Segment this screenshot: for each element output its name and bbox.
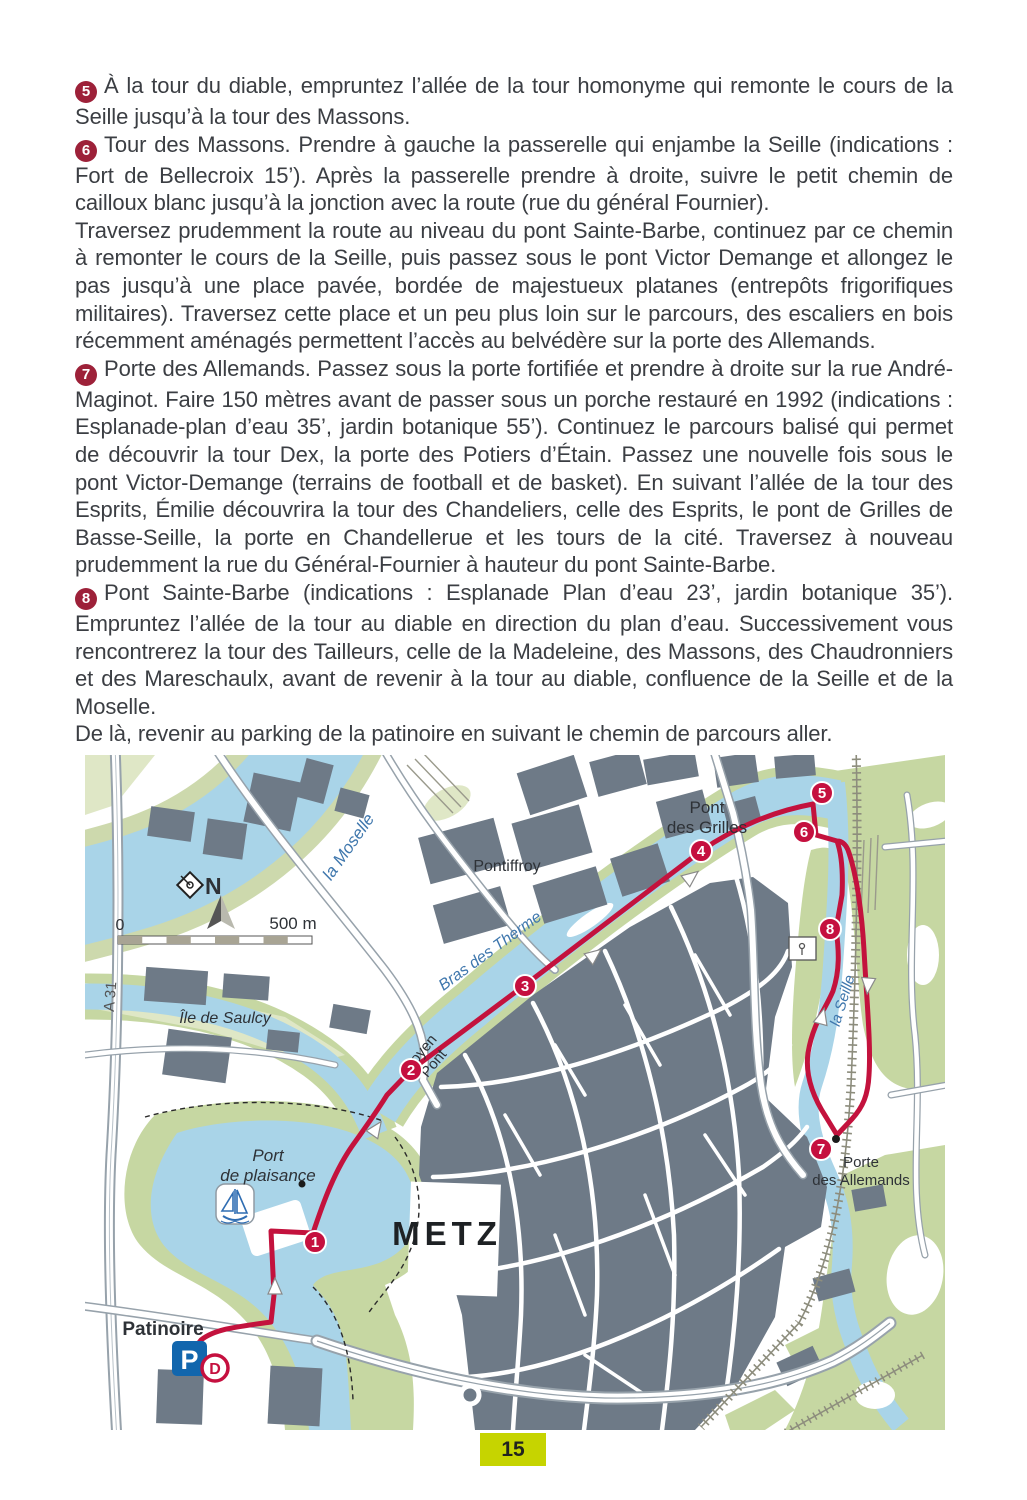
paragraph-text: À la tour du diable, empruntez l’allée d… [75, 73, 953, 129]
svg-text:4: 4 [697, 843, 706, 860]
svg-text:8: 8 [826, 921, 834, 938]
paragraph-step6: 6Tour des Massons. Prendre à gauche la p… [75, 131, 953, 217]
label-pontiffroy: Pontiffroy [473, 858, 540, 875]
svg-text:2: 2 [407, 1062, 415, 1079]
depart-letter: D [209, 1361, 221, 1378]
depart-icon: D [202, 1355, 228, 1381]
route-marker-3: 3 [514, 975, 536, 997]
paragraph-return: De là, revenir au parking de la patinoir… [75, 720, 953, 748]
porte-allemands-dot [832, 1135, 840, 1143]
step-badge-5: 5 [75, 81, 97, 103]
route-marker-1: 1 [304, 1231, 326, 1253]
route-marker-7: 7 [810, 1138, 832, 1160]
route-marker-8: 8 [819, 918, 841, 940]
route-marker-6: 6 [793, 821, 815, 843]
scale-zero: 0 [116, 917, 125, 934]
label-metz: METZ [392, 1215, 502, 1252]
map-canvas: P D la Moselle Bras des Therme la Seille… [85, 755, 945, 1430]
paragraph-text: Porte des Allemands. Passez sous la port… [75, 356, 953, 578]
svg-text:5: 5 [818, 785, 826, 802]
page-number-badge: 15 [480, 1433, 546, 1466]
label-porte-des-allemands: Porte [843, 1154, 879, 1171]
step-badge-7: 7 [75, 364, 97, 386]
garden-icon [789, 937, 816, 960]
label-pont-des-grilles: Pont [690, 798, 725, 817]
paragraph-text: De là, revenir au parking de la patinoir… [75, 721, 832, 746]
label-ile-de-saulcy: Île de Saulcy [179, 1008, 272, 1027]
page-number: 15 [501, 1438, 524, 1462]
svg-text:7: 7 [817, 1141, 825, 1158]
svg-text:1: 1 [311, 1234, 319, 1251]
roundabout [461, 1386, 479, 1404]
paragraph-text: Tour des Massons. Prendre à gauche la pa… [75, 132, 953, 216]
compass-north-letter: N [205, 873, 222, 899]
scale-distance: 500 m [269, 914, 316, 933]
scale-bar [118, 936, 312, 944]
step-badge-8: 8 [75, 588, 97, 610]
svg-text:des Grilles: des Grilles [667, 818, 747, 837]
paragraph-step5: 5À la tour du diable, empruntez l’allée … [75, 72, 953, 131]
paragraph-step8: 8Pont Sainte-Barbe (indications : Esplan… [75, 579, 953, 720]
svg-text:des Allemands: des Allemands [812, 1172, 910, 1189]
label-port-de-plaisance: Port [252, 1146, 284, 1165]
marina-icon [216, 1184, 254, 1224]
route-description: 5À la tour du diable, empruntez l’allée … [75, 72, 953, 748]
route-marker-4: 4 [690, 840, 712, 862]
parking-letter: P [180, 1345, 198, 1375]
svg-text:de plaisance: de plaisance [220, 1166, 315, 1185]
route-marker-2: 2 [400, 1059, 422, 1081]
route-marker-5: 5 [811, 782, 833, 804]
paragraph-step7: 7Porte des Allemands. Passez sous la por… [75, 355, 953, 579]
paragraph-text: Pont Sainte-Barbe (indications : Esplana… [75, 580, 953, 719]
svg-text:6: 6 [800, 824, 808, 841]
step-badge-6: 6 [75, 140, 97, 162]
paragraph-middle: Traversez prudemment la route au niveau … [75, 217, 953, 355]
route-map: P D la Moselle Bras des Therme la Seille… [85, 755, 945, 1430]
paragraph-text: Traversez prudemment la route au niveau … [75, 218, 953, 353]
label-a31: A 31 [101, 981, 121, 1012]
svg-text:3: 3 [521, 978, 529, 995]
label-patinoire: Patinoire [122, 1319, 203, 1340]
